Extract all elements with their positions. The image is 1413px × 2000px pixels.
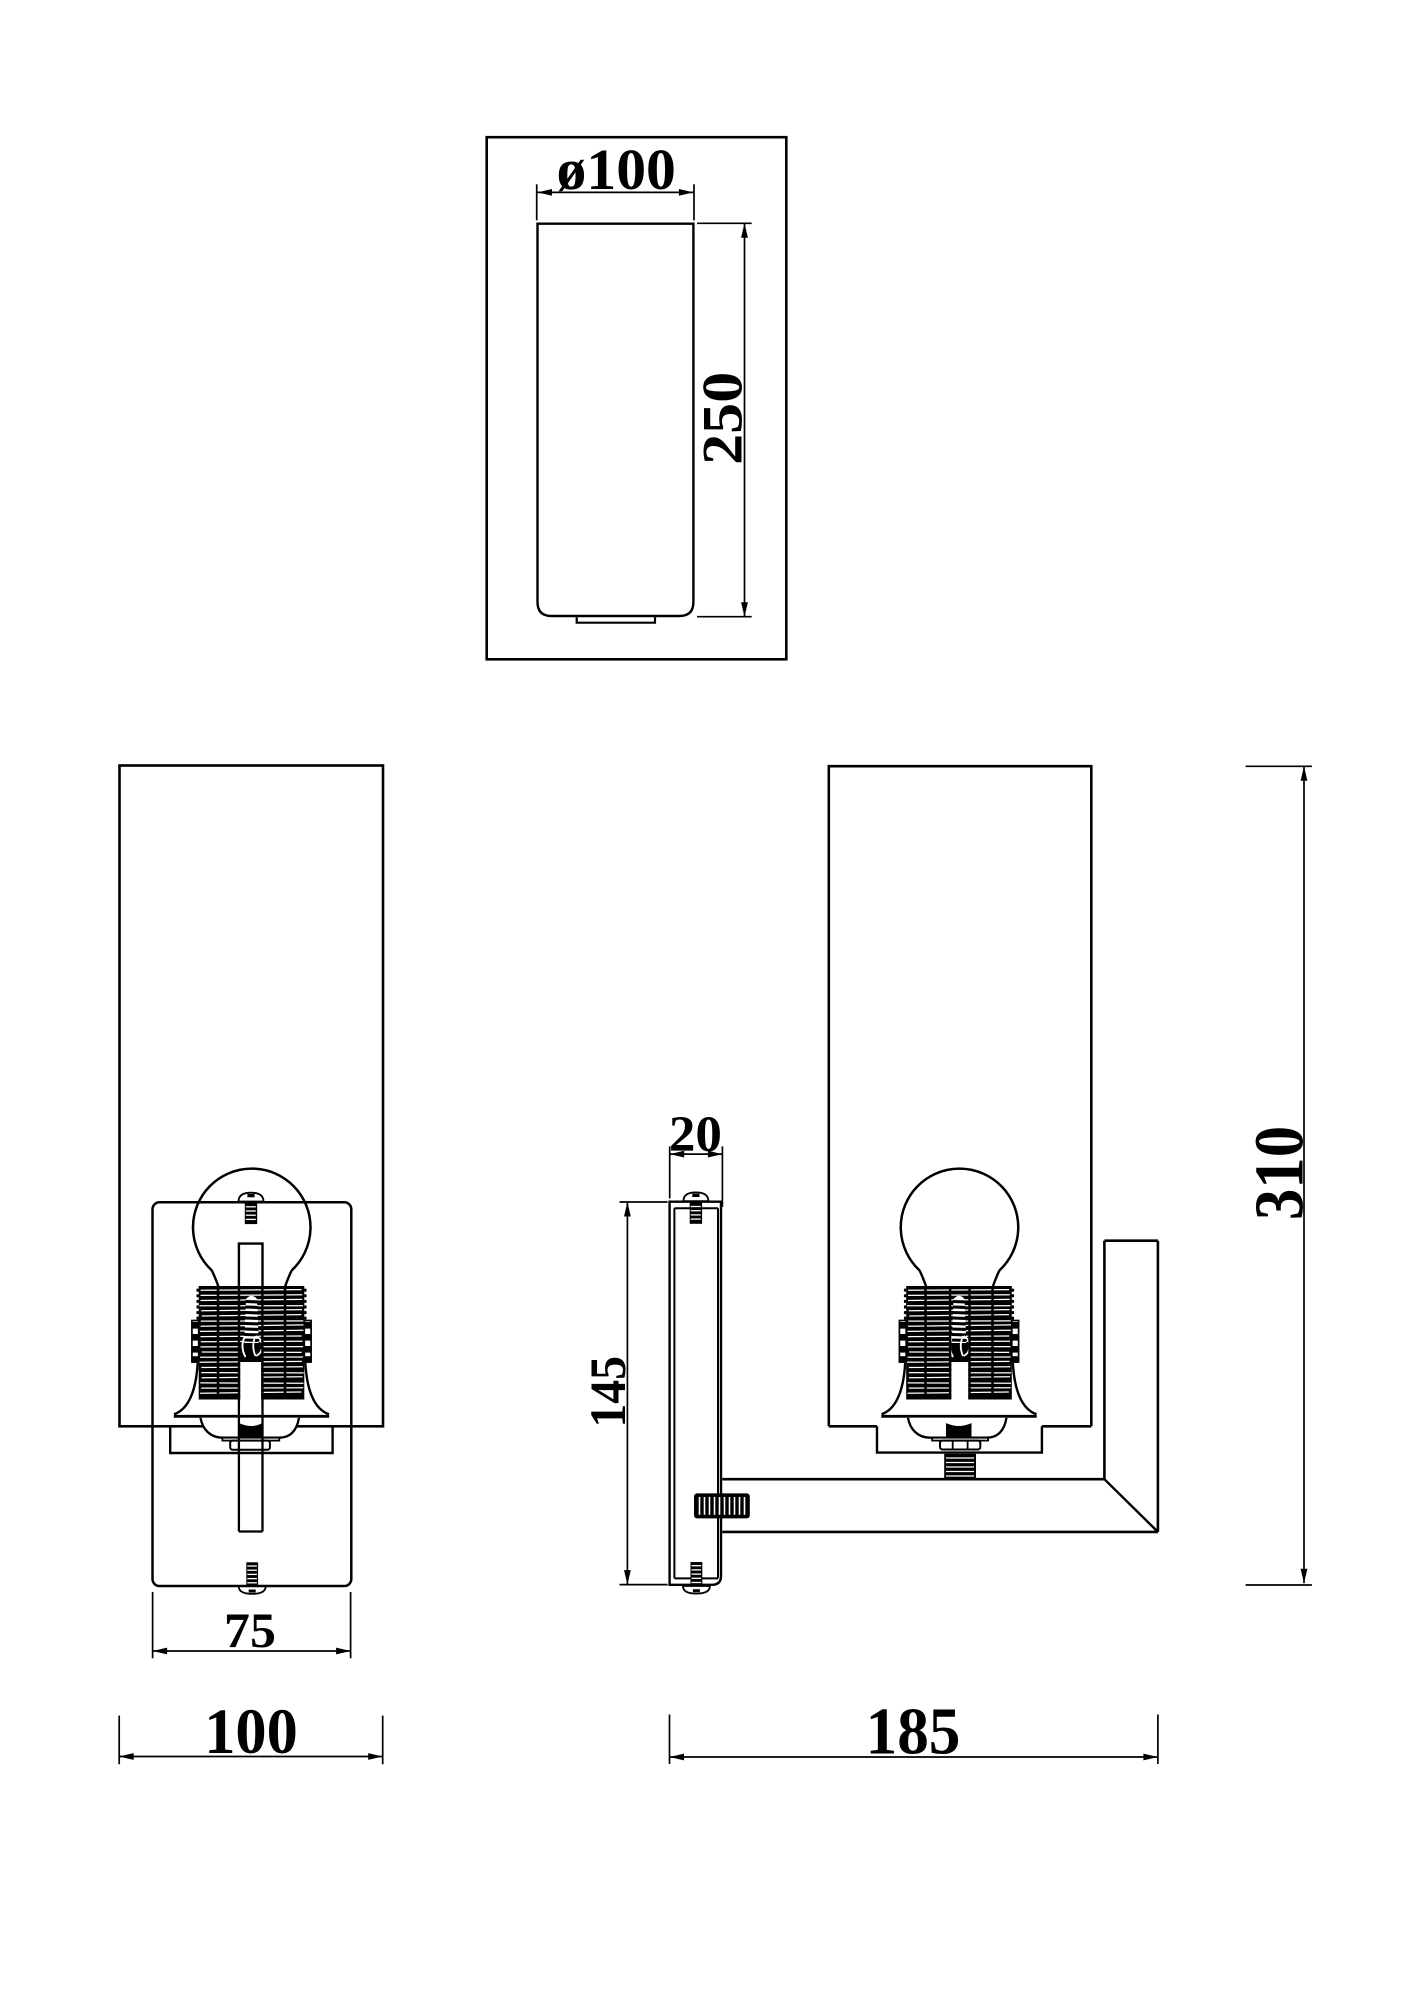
svg-text:250: 250	[692, 372, 755, 465]
svg-text:310: 310	[1241, 1126, 1319, 1220]
svg-text:145: 145	[580, 1356, 636, 1428]
svg-text:20: 20	[669, 1106, 722, 1163]
svg-text:100: 100	[204, 1695, 298, 1767]
svg-text:ø100: ø100	[557, 137, 676, 202]
svg-text:75: 75	[224, 1603, 276, 1658]
svg-text:185: 185	[866, 1695, 961, 1768]
